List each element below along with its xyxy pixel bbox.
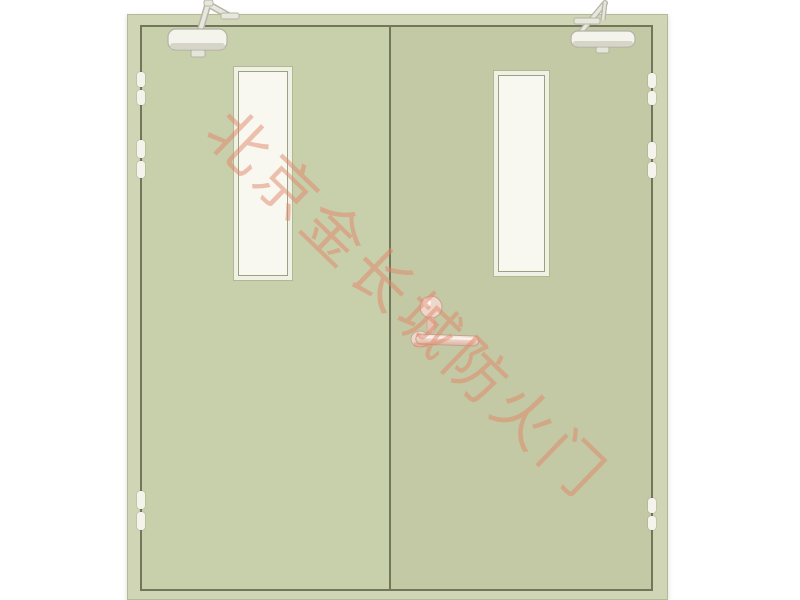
closer-body	[571, 31, 635, 53]
hinge-right-bottom	[648, 498, 656, 530]
right-vision-panel	[494, 71, 549, 276]
lock-knob-icon	[420, 296, 442, 333]
door-leaves	[140, 25, 653, 591]
closer-arm	[574, 3, 605, 33]
closer-body	[168, 29, 227, 57]
left-vision-panel	[234, 67, 292, 280]
door-closer-left-icon	[155, 0, 265, 62]
fire-door-photo: 北京金长城防火门	[0, 0, 800, 600]
closer-arm	[200, 0, 239, 31]
hinge-left-upper	[137, 140, 145, 178]
hinge-right-upper	[648, 142, 656, 178]
lever-icon	[411, 331, 479, 347]
hinge-left-top	[137, 72, 145, 105]
hinge-left-bottom	[137, 491, 145, 530]
lever-handle-icon	[398, 288, 493, 356]
left-vision-glass	[239, 72, 287, 275]
right-vision-glass	[499, 76, 544, 271]
door-closer-right-icon	[556, 0, 656, 58]
hinge-right-top	[648, 73, 656, 105]
